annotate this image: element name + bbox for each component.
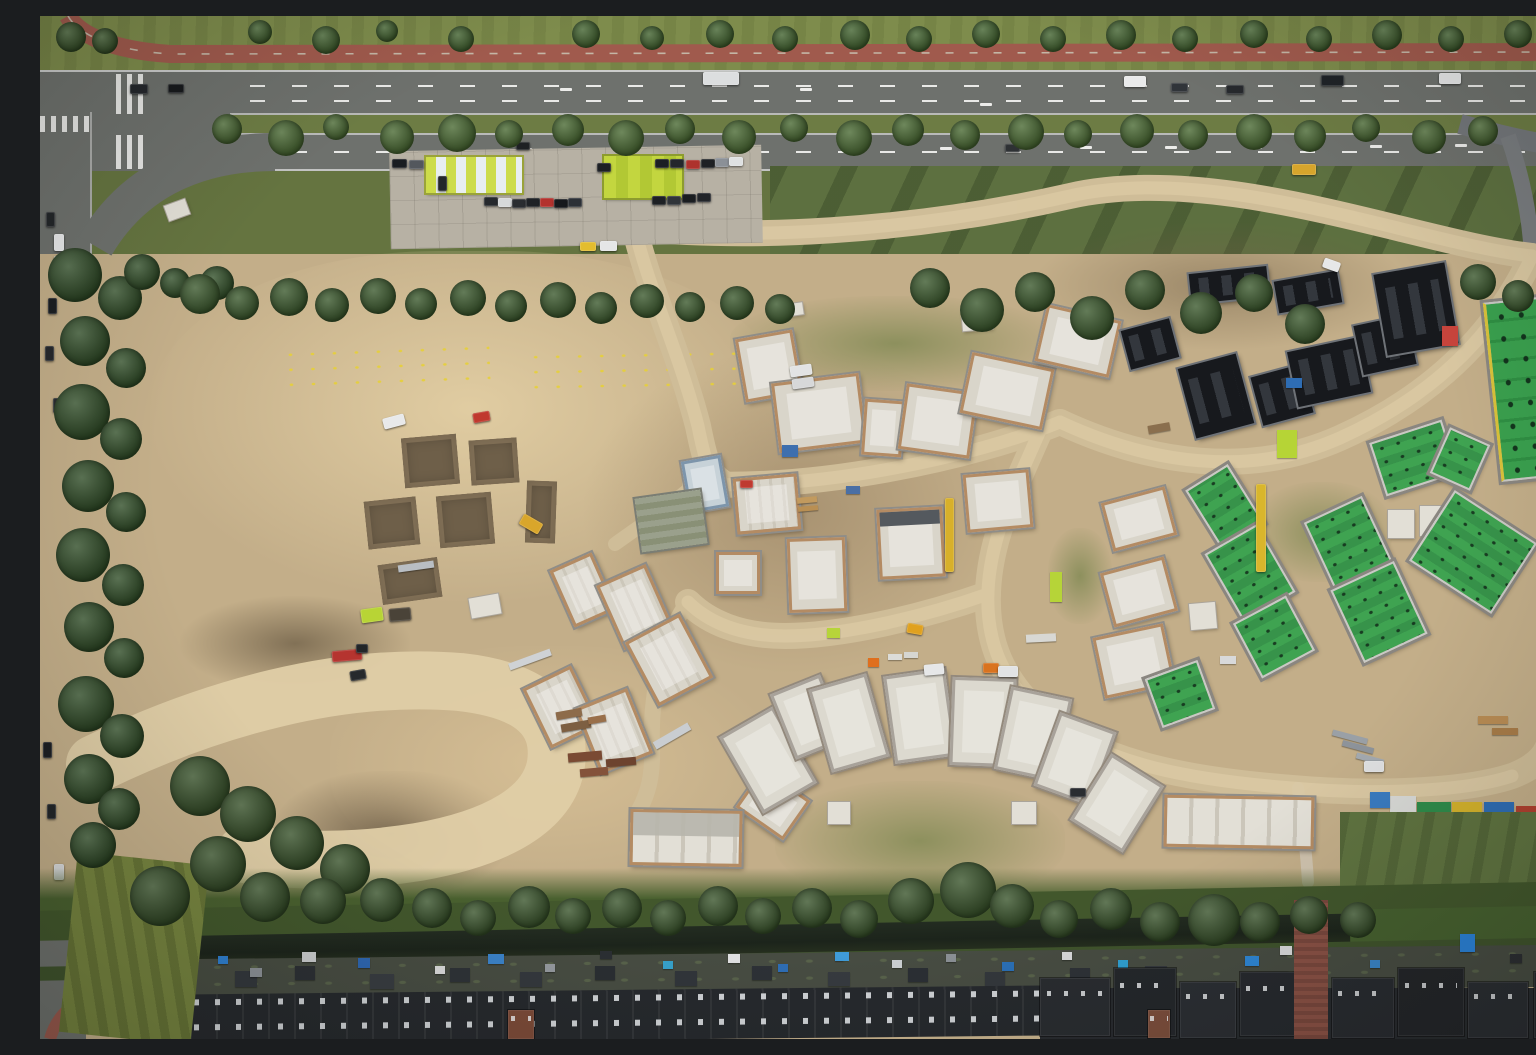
- street-tree: [1438, 26, 1464, 52]
- shrub: [675, 292, 705, 322]
- garden-item: [663, 961, 673, 969]
- canal-tree: [1140, 902, 1180, 942]
- street-tree: [1504, 20, 1532, 48]
- canal-tree: [130, 866, 190, 926]
- boundary-tree: [124, 254, 160, 290]
- garden-item: [778, 964, 788, 972]
- shrub: [1285, 304, 1325, 344]
- construction-vehicle: [740, 480, 753, 488]
- parked-car: [484, 197, 498, 206]
- car-on-road: [54, 234, 64, 251]
- canal-tree: [840, 900, 878, 938]
- car-on-road: [703, 72, 739, 85]
- street-tree: [380, 120, 414, 154]
- boundary-tree: [100, 714, 144, 758]
- construction-vehicle: [1364, 761, 1384, 772]
- car-on-road: [1226, 85, 1244, 94]
- garden-item: [1460, 934, 1475, 952]
- boundary-tree: [70, 822, 116, 868]
- construction-vehicle: [356, 644, 368, 653]
- street-tree: [640, 26, 664, 50]
- boundary-tree: [56, 528, 110, 582]
- street-tree: [972, 20, 1000, 48]
- garden-shed: [520, 972, 542, 987]
- street-tree: [1064, 120, 1092, 148]
- shrub: [225, 286, 259, 320]
- shrub: [450, 280, 486, 316]
- canal-tree: [300, 878, 346, 924]
- shrub: [1460, 264, 1496, 300]
- construction-vehicle: [998, 666, 1018, 677]
- car-on-road: [168, 84, 184, 93]
- garden-item: [302, 952, 316, 962]
- street-tree: [248, 20, 272, 44]
- canal-tree: [990, 884, 1034, 928]
- building-materials: [904, 652, 918, 658]
- parked-car: [409, 160, 424, 169]
- canal-tree: [460, 900, 496, 936]
- canal-tree: [270, 816, 324, 870]
- street-tree: [780, 114, 808, 142]
- shrub: [315, 288, 349, 322]
- building-materials: [888, 654, 902, 660]
- garden-shed: [985, 972, 1005, 986]
- concrete-pad: [1012, 802, 1036, 824]
- concrete-pad: [828, 802, 850, 824]
- garden-item: [946, 954, 956, 962]
- building-materials: [1286, 378, 1302, 388]
- garden-shed: [908, 968, 928, 982]
- parked-car: [715, 158, 729, 167]
- shrub: [1180, 292, 1222, 334]
- street-tree: [376, 20, 398, 42]
- construction-vehicle: [924, 663, 945, 676]
- shrub: [360, 278, 396, 314]
- street-tree: [312, 26, 340, 54]
- garden-item: [250, 968, 262, 977]
- foundation-pit: [436, 492, 495, 549]
- parked-car: [600, 241, 617, 251]
- street-tree: [772, 26, 798, 52]
- parked-car: [682, 194, 696, 203]
- street-tree: [572, 20, 600, 48]
- building-materials: [1050, 572, 1062, 602]
- garden-item: [1370, 960, 1380, 968]
- parked-car: [670, 159, 684, 168]
- road-marking: [560, 88, 572, 91]
- canal-tree: [698, 886, 738, 926]
- side-road-branch: [1508, 136, 1532, 256]
- street-tree: [92, 28, 118, 54]
- garden-shed: [752, 966, 772, 980]
- car-on-road: [48, 298, 57, 314]
- construction-vehicle: [1070, 788, 1086, 797]
- house-roof: [508, 1010, 534, 1039]
- garden-item: [600, 951, 612, 959]
- parked-car: [686, 160, 700, 169]
- street-tree: [268, 120, 304, 156]
- street-tree: [1372, 20, 1402, 50]
- house-roof: [1468, 982, 1528, 1038]
- street-tree: [1236, 114, 1272, 150]
- construction-vehicle: [983, 663, 999, 673]
- boundary-tree: [64, 602, 114, 652]
- house-roof: [1398, 968, 1464, 1036]
- garden-item: [1118, 960, 1128, 968]
- building-materials: [827, 628, 840, 638]
- street-tree: [1008, 114, 1044, 150]
- canal-tree: [1188, 894, 1240, 946]
- street-tree: [722, 120, 756, 154]
- street-tree: [1040, 26, 1066, 52]
- parked-car: [568, 198, 582, 207]
- parked-car: [540, 198, 554, 207]
- foundation-pit: [401, 434, 460, 489]
- sand-haul-road-sweep: [95, 680, 557, 859]
- building-materials: [1277, 430, 1297, 458]
- street-tree: [1106, 20, 1136, 50]
- car-on-road: [1171, 83, 1188, 92]
- road-marking: [1165, 146, 1177, 149]
- parked-car: [701, 159, 715, 168]
- construction-vehicle: [1292, 164, 1316, 175]
- house-roof: [1040, 978, 1110, 1036]
- shrub: [1502, 280, 1534, 312]
- street-tree: [448, 26, 474, 52]
- garden-item: [1510, 954, 1522, 963]
- terrace-row-building: [1164, 795, 1315, 850]
- street-tree: [1240, 20, 1268, 48]
- boundary-tree: [104, 638, 144, 678]
- boundary-tree: [98, 788, 140, 830]
- shrub: [960, 288, 1004, 332]
- concrete-pad: [1388, 510, 1414, 538]
- canal-tree: [1290, 896, 1328, 934]
- garden-shed: [595, 966, 615, 980]
- foundation-slab-building: [716, 552, 760, 594]
- building-materials: [1220, 656, 1236, 664]
- parked-car: [667, 196, 681, 205]
- garden-item: [435, 966, 445, 974]
- street-tree: [1306, 26, 1332, 52]
- garden-item: [1280, 946, 1292, 955]
- garden-item: [218, 956, 228, 964]
- house-roof: [1148, 1010, 1170, 1038]
- concrete-pad: [1189, 602, 1217, 630]
- parked-car: [498, 198, 512, 207]
- street-tree: [1120, 114, 1154, 148]
- garden-item: [1002, 962, 1014, 971]
- parked-car: [438, 176, 447, 191]
- construction-vehicle: [1256, 484, 1266, 572]
- foundation-slab-building: [876, 506, 946, 579]
- street-tree: [665, 114, 695, 144]
- canal-tree: [888, 878, 934, 924]
- car-on-road: [45, 346, 54, 361]
- street-tree: [323, 114, 349, 140]
- parked-car: [729, 157, 743, 166]
- canal-tree: [190, 836, 246, 892]
- canal-tree: [220, 786, 276, 842]
- canal-tree: [360, 878, 404, 922]
- construction-vehicle: [945, 498, 954, 572]
- foundation-slab-building: [963, 469, 1034, 533]
- building-materials: [1442, 326, 1458, 346]
- garden-shed: [828, 972, 850, 986]
- fan-arc-building: [883, 668, 957, 764]
- boundary-tree: [48, 248, 102, 302]
- street-tree: [892, 114, 924, 146]
- shrub: [720, 286, 754, 320]
- road-marking: [800, 88, 812, 91]
- street-tree: [56, 22, 86, 52]
- canal-tree: [412, 888, 452, 928]
- garden-item: [545, 964, 555, 972]
- road-marking: [1455, 144, 1467, 147]
- canal-tree: [650, 900, 686, 936]
- terraced-house-roofs: [164, 985, 1059, 1039]
- garden-item: [835, 952, 849, 961]
- building-materials: [782, 445, 798, 457]
- foundation-pit: [468, 437, 519, 485]
- street-tree: [438, 114, 476, 152]
- garden-item: [358, 958, 370, 968]
- boundary-tree: [106, 492, 146, 532]
- car-on-road: [130, 84, 148, 94]
- road-marking: [940, 147, 952, 150]
- boundary-tree: [100, 418, 142, 460]
- car-on-road: [43, 742, 52, 758]
- street-tree: [1172, 26, 1198, 52]
- canal-tree: [940, 862, 996, 918]
- canal-tree: [1340, 902, 1376, 938]
- shrub: [1125, 270, 1165, 310]
- street-tree: [706, 20, 734, 48]
- garden-shed: [370, 974, 394, 989]
- shrub: [495, 290, 527, 322]
- house-roof: [1180, 982, 1236, 1038]
- street-tree: [1294, 120, 1326, 152]
- shrub: [1235, 274, 1273, 312]
- terrace-row-building: [630, 809, 743, 867]
- car-on-road: [1321, 75, 1344, 86]
- shrub: [180, 274, 220, 314]
- shrub: [630, 284, 664, 318]
- parked-car: [554, 199, 568, 208]
- canal-tree: [792, 888, 832, 928]
- canal-tree: [240, 872, 290, 922]
- parked-car: [526, 198, 540, 207]
- garden-item: [892, 960, 902, 968]
- parked-car: [512, 199, 526, 208]
- street-tree: [495, 120, 523, 148]
- parked-car: [580, 242, 596, 251]
- building-materials: [1478, 716, 1508, 724]
- shrub: [910, 268, 950, 308]
- canal-tree: [555, 898, 591, 934]
- canal-tree: [1040, 900, 1078, 938]
- garden-shed: [450, 968, 470, 982]
- canal-tree: [1240, 902, 1280, 942]
- canal-tree: [745, 898, 781, 934]
- street-tree: [906, 26, 932, 52]
- foundation-pit: [364, 496, 421, 549]
- parked-car: [655, 159, 669, 168]
- shrub: [1070, 296, 1114, 340]
- garden-shed: [295, 966, 315, 980]
- shrub: [585, 292, 617, 324]
- street-tree: [840, 20, 870, 50]
- shipping-container: [1370, 792, 1390, 808]
- shrub: [540, 282, 576, 318]
- road-marking: [1370, 145, 1382, 148]
- street-tree: [212, 114, 242, 144]
- site-shed: [635, 490, 708, 553]
- street-tree: [950, 120, 980, 150]
- building-materials: [846, 486, 860, 494]
- road-marking: [980, 103, 992, 106]
- street-tree: [1178, 120, 1208, 150]
- street-tree: [1468, 116, 1498, 146]
- garden-item: [1062, 952, 1072, 960]
- car-on-road: [47, 804, 56, 819]
- garden-shed: [675, 971, 697, 986]
- street-tree: [836, 120, 872, 156]
- building-materials: [1492, 728, 1518, 735]
- parked-car: [652, 196, 666, 205]
- car-on-road: [1439, 73, 1461, 84]
- house-roof: [1332, 978, 1394, 1038]
- garden-item: [728, 954, 740, 963]
- shrub: [405, 288, 437, 320]
- house-roof: [1240, 972, 1298, 1036]
- parked-car: [597, 163, 611, 172]
- street-tree: [552, 114, 584, 146]
- foundation-slab-building: [771, 373, 867, 453]
- boundary-tree: [102, 564, 144, 606]
- boundary-tree: [106, 348, 146, 388]
- foundation-slab-building: [787, 537, 848, 613]
- shrub: [270, 278, 308, 316]
- construction-vehicle: [388, 607, 411, 622]
- garden-item: [488, 954, 504, 964]
- building-materials: [1026, 633, 1056, 643]
- garden-item: [1245, 956, 1259, 966]
- canal-tree: [1090, 888, 1132, 930]
- shrub: [765, 294, 795, 324]
- car-on-road: [1124, 76, 1146, 87]
- canal-tree: [508, 886, 550, 928]
- foundation-pit: [525, 480, 557, 543]
- canal-tree: [602, 888, 642, 928]
- car-on-road: [46, 212, 55, 227]
- street-tree: [608, 120, 644, 156]
- street-tree: [1352, 114, 1380, 142]
- parked-car: [697, 193, 711, 202]
- parked-car: [392, 159, 407, 168]
- street-tree: [1412, 120, 1446, 154]
- boundary-tree: [62, 460, 114, 512]
- shrub: [1015, 272, 1055, 312]
- boundary-tree: [60, 316, 110, 366]
- building-materials: [868, 658, 879, 667]
- aerial-construction-site-photo: [40, 16, 1536, 1039]
